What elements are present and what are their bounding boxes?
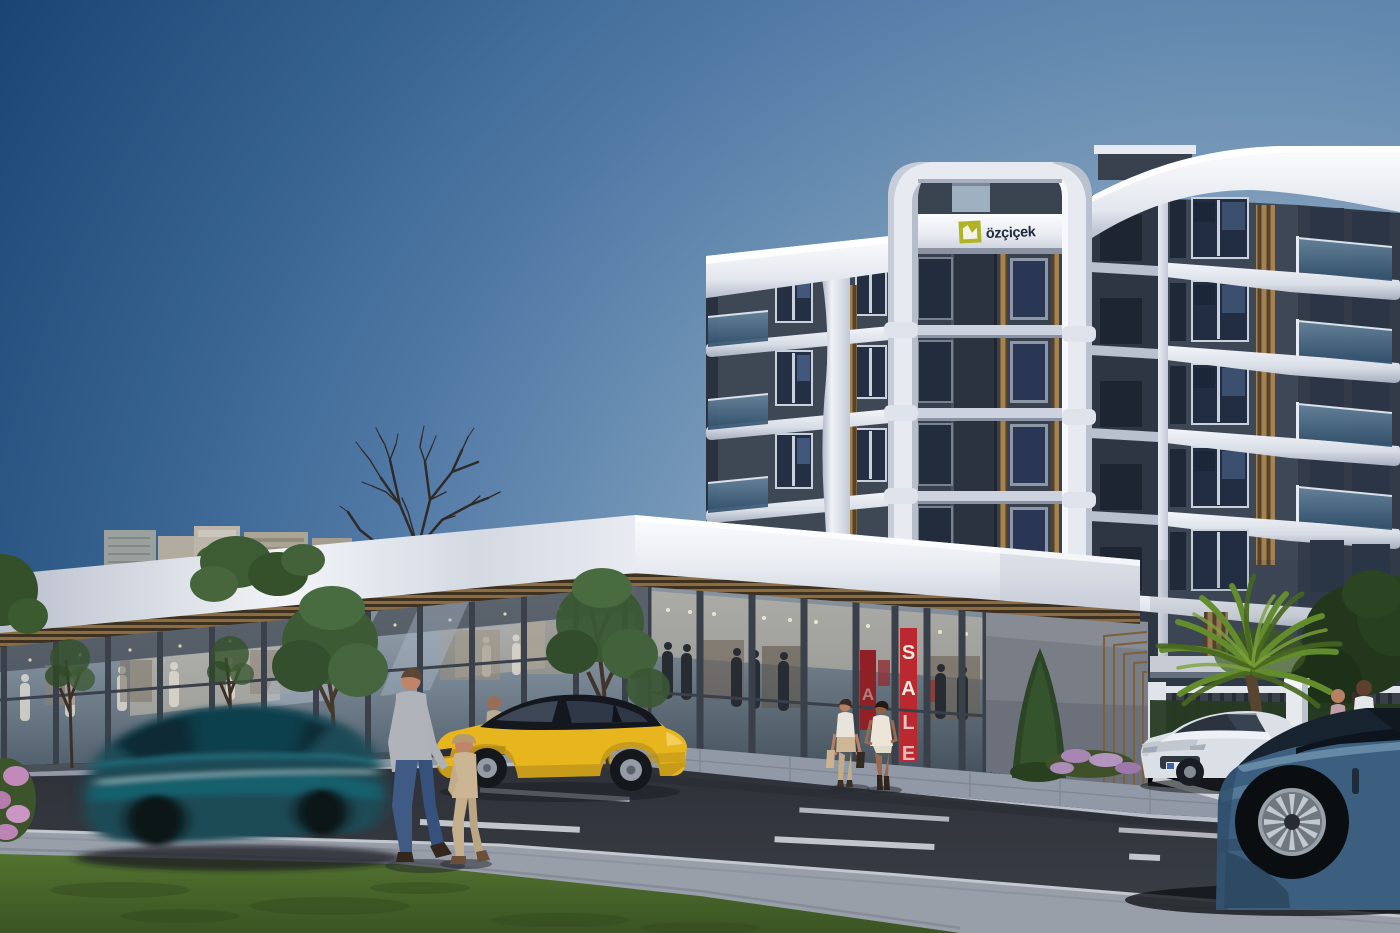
svg-text:S: S <box>902 642 915 664</box>
svg-text:A: A <box>862 685 874 704</box>
svg-text:L: L <box>902 712 914 734</box>
svg-text:E: E <box>902 743 915 765</box>
svg-text:A: A <box>901 678 915 700</box>
svg-text:özçiçek: özçiçek <box>986 224 1037 242</box>
